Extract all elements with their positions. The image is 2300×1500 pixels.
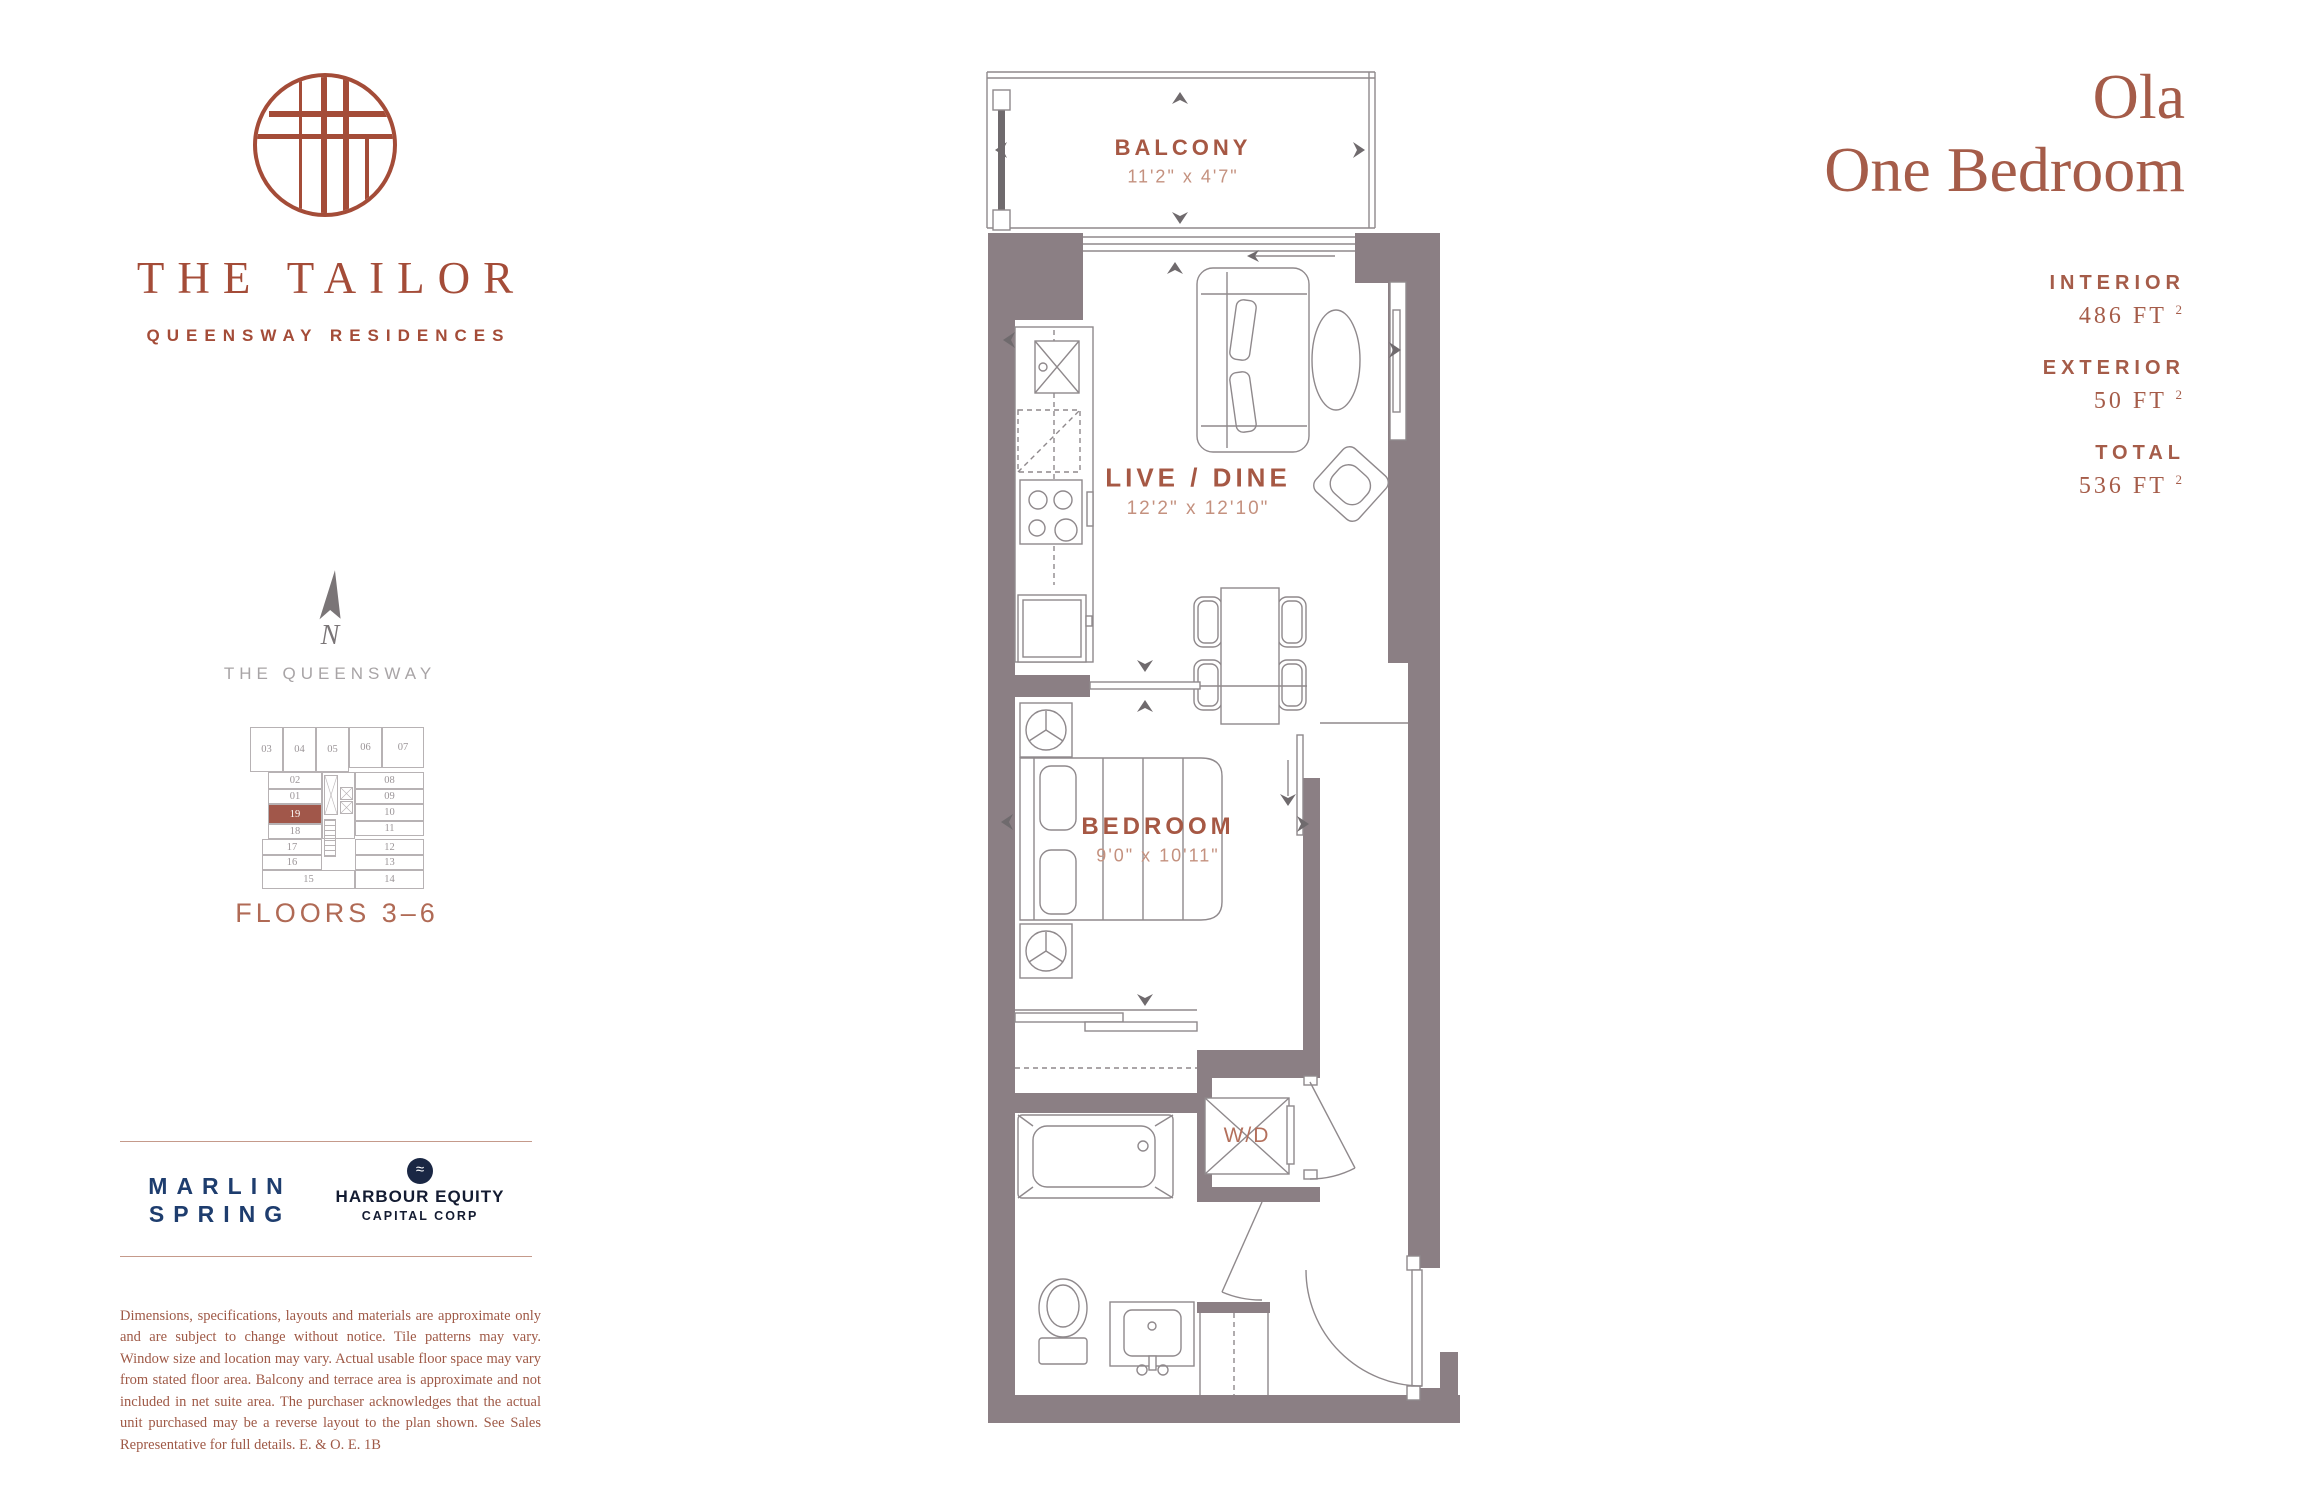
marlin-line1: MARLIN xyxy=(135,1172,305,1200)
keyplan-unit: 16 xyxy=(262,855,322,870)
unit-name: Ola xyxy=(1565,60,2185,133)
keyplan-unit: 13 xyxy=(355,855,424,870)
livedine-label: LIVE / DINE xyxy=(1105,463,1291,494)
laundry-label: W/D xyxy=(1224,1124,1271,1148)
divider-bottom xyxy=(120,1256,532,1257)
keyplan-unit: 06 xyxy=(349,727,382,768)
area-stats: INTERIOR 486 FT 2 EXTERIOR 50 FT 2 TOTAL… xyxy=(1565,272,2185,500)
bedroom-dims: 9'0" x 10'11" xyxy=(1096,846,1219,867)
brand-name: THE TAILOR xyxy=(100,252,550,304)
sofa xyxy=(1197,268,1309,452)
north-arrow-icon xyxy=(300,568,360,628)
bathroom-door-leaf xyxy=(1222,1202,1262,1292)
elevator-icon xyxy=(340,801,353,814)
keyplan-unit: 17 xyxy=(262,839,322,855)
elevator-icon xyxy=(340,787,353,800)
bathroom-door-arc xyxy=(1222,1292,1262,1300)
keyplan-unit: 02 xyxy=(268,772,322,789)
keyplan-unit-highlighted: 19 xyxy=(268,804,322,824)
coffee-table xyxy=(1312,310,1360,410)
compass-north-letter: N xyxy=(300,620,360,652)
floorplan-page: { "brand": { "name": "THE TAILOR", "tagl… xyxy=(0,0,2300,1500)
toilet xyxy=(1039,1279,1087,1337)
keyplan-unit: 04 xyxy=(283,727,316,772)
entry-door-arc xyxy=(1306,1270,1422,1386)
disclaimer-text: Dimensions, specifications, layouts and … xyxy=(120,1306,541,1456)
keyplan-unit: 07 xyxy=(382,727,424,768)
brand-tagline: QUEENSWAY RESIDENCES xyxy=(100,326,550,346)
livedine-dims: 12'2" x 12'10" xyxy=(1127,498,1270,520)
unit-type: One Bedroom xyxy=(1565,133,2185,206)
keyplan-unit: 01 xyxy=(268,789,322,804)
keyplan-unit: 18 xyxy=(268,824,322,839)
dining-table xyxy=(1221,588,1279,724)
keyplan-unit: 09 xyxy=(355,789,424,804)
stair-icon xyxy=(324,819,336,857)
harbour-line2: CAPITAL CORP xyxy=(325,1209,515,1223)
keyplan: 03 04 05 06 07 02 01 19 18 17 16 15 08 0… xyxy=(250,727,424,889)
stove xyxy=(1020,480,1082,544)
keyplan-unit: 11 xyxy=(355,821,424,836)
keyplan-unit: 12 xyxy=(355,839,424,855)
floors-label: FLOORS 3–6 xyxy=(215,898,459,929)
stat-interior: INTERIOR 486 FT 2 xyxy=(1565,272,2185,330)
elevator-icon xyxy=(324,775,338,815)
dining-set xyxy=(1194,588,1306,724)
keyplan-unit: 03 xyxy=(250,727,283,772)
marlin-line2: SPRING xyxy=(135,1200,305,1228)
keyplan-unit: 08 xyxy=(355,772,424,789)
entry-closet xyxy=(1200,1313,1268,1395)
kitchen xyxy=(1015,327,1093,662)
balcony-dims: 11'2" x 4'7" xyxy=(1127,167,1238,188)
unit-info-panel: Ola One Bedroom INTERIOR 486 FT 2 EXTERI… xyxy=(1565,60,2185,527)
floorplan-drawing xyxy=(985,60,1485,1450)
keyplan-unit: 05 xyxy=(316,727,349,772)
entry-door xyxy=(1306,1256,1422,1400)
street-label: THE QUEENSWAY xyxy=(150,664,510,684)
accent-chair xyxy=(1310,443,1392,525)
bedroom-label: BEDROOM xyxy=(1081,813,1234,841)
harbour-line1: HARBOUR EQUITY xyxy=(325,1187,515,1207)
keyplan-unit: 15 xyxy=(262,870,355,889)
entry-door-leaf xyxy=(1412,1270,1422,1386)
balcony-label: BALCONY xyxy=(1115,135,1252,161)
keyplan-unit: 14 xyxy=(355,870,424,889)
wave-icon: ≈ xyxy=(407,1158,433,1184)
tailor-logo-icon xyxy=(253,73,397,217)
keyplan-unit: 10 xyxy=(355,804,424,821)
balcony-privacy-screen xyxy=(998,93,1005,220)
divider-top xyxy=(120,1141,532,1142)
laundry-door-leaf xyxy=(1310,1082,1355,1168)
marlin-spring-logo: MARLIN SPRING xyxy=(135,1172,305,1228)
stat-exterior: EXTERIOR 50 FT 2 xyxy=(1565,357,2185,415)
bedroom-closet xyxy=(1015,1010,1197,1068)
harbour-equity-logo: ≈ HARBOUR EQUITY CAPITAL CORP xyxy=(325,1158,515,1223)
stat-total: TOTAL 536 FT 2 xyxy=(1565,442,2185,500)
floorplan: BALCONY 11'2" x 4'7" LIVE / DINE 12'2" x… xyxy=(985,60,1485,1450)
fridge xyxy=(1018,595,1086,662)
tv-console xyxy=(1390,282,1406,440)
window-band xyxy=(1083,237,1355,262)
